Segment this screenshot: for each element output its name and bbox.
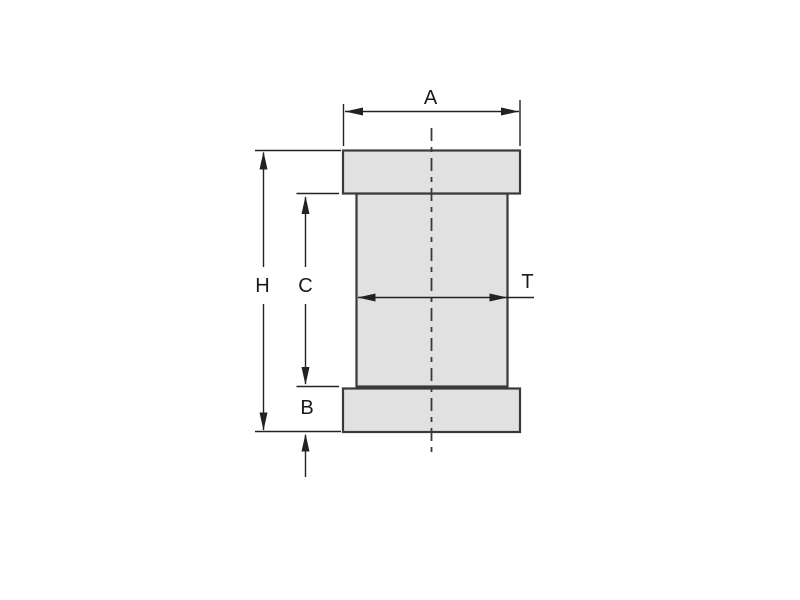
dim-c-arrowhead-up [302, 196, 310, 214]
dim-a-arrowhead-right [501, 108, 519, 116]
dim-a-arrowhead-left [345, 108, 363, 116]
dim-c-arrowhead-down [302, 367, 310, 385]
part-top-flange-shape [343, 151, 520, 194]
dim-t-label: T [521, 271, 533, 293]
drawing-canvas: A H C B [0, 0, 800, 600]
dim-b-arrowhead-up [302, 434, 310, 452]
dim-h-arrowhead-down [260, 413, 268, 431]
dimension-b: B [300, 397, 313, 477]
technical-drawing: A H C B [0, 0, 800, 600]
dim-b-label: B [300, 397, 313, 419]
part-outline [343, 128, 520, 454]
dim-h-arrowhead-up [260, 152, 268, 170]
dim-c-label: C [298, 275, 312, 297]
dim-a-label: A [424, 87, 438, 109]
dim-h-label: H [255, 275, 269, 297]
dimension-c: C [297, 194, 340, 387]
